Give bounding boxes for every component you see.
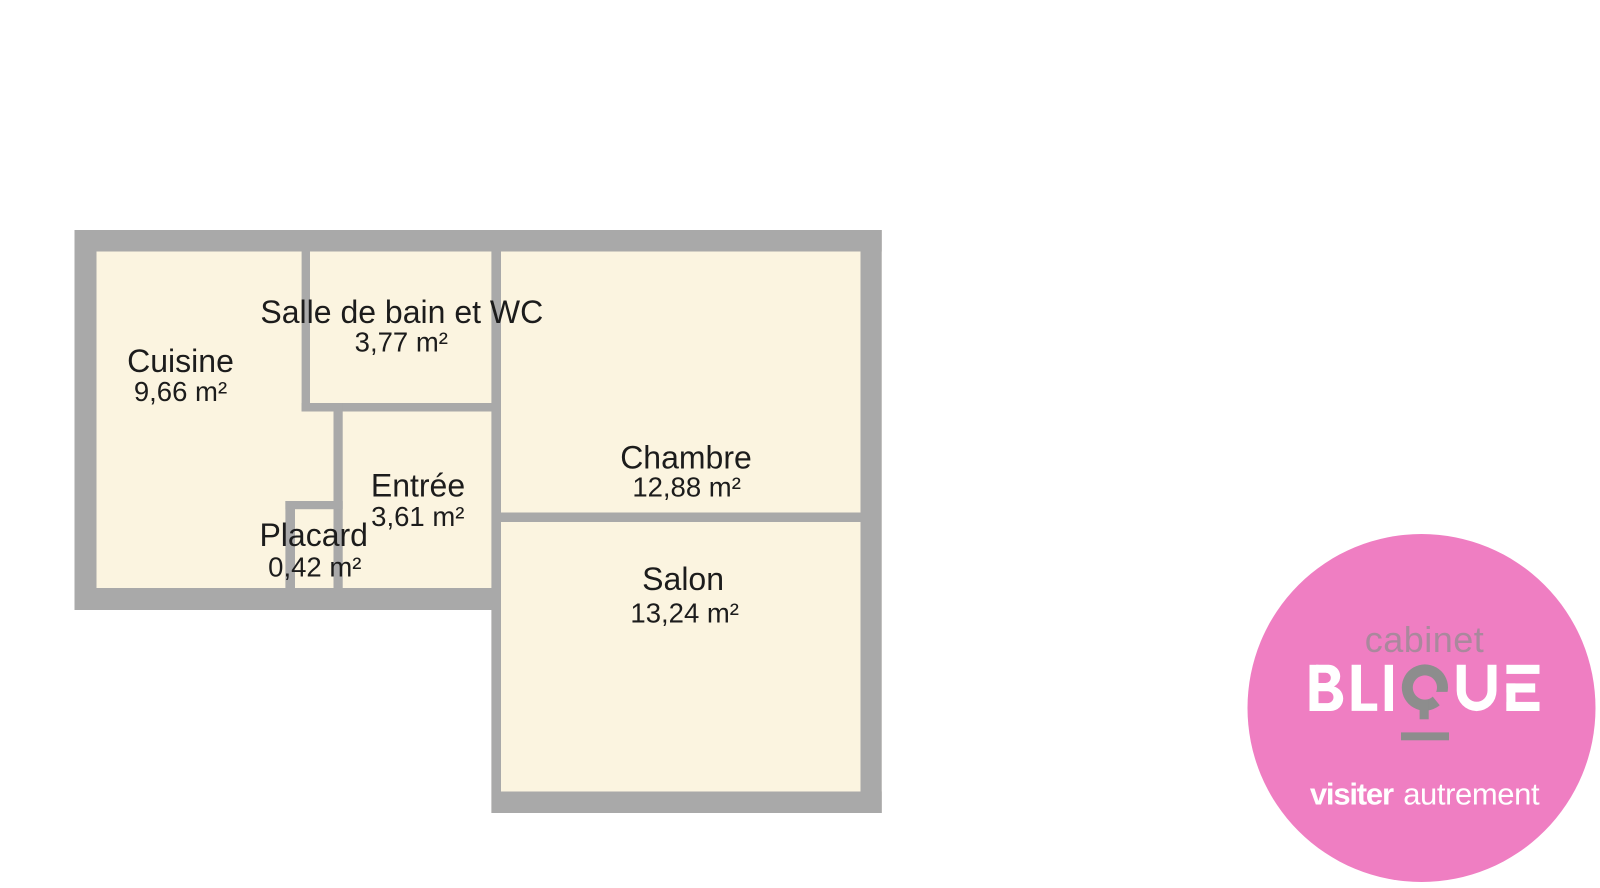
svg-text:Salon: Salon bbox=[642, 561, 724, 597]
svg-text:Entrée: Entrée bbox=[371, 468, 465, 504]
svg-text:Chambre: Chambre bbox=[620, 440, 752, 476]
svg-text:0,42 m²: 0,42 m² bbox=[268, 552, 361, 583]
svg-text:visiter: visiter bbox=[1310, 777, 1394, 812]
svg-text:Cuisine: Cuisine bbox=[127, 343, 234, 379]
svg-text:13,24 m²: 13,24 m² bbox=[630, 598, 739, 629]
svg-text:Placard: Placard bbox=[259, 517, 368, 553]
svg-text:9,66 m²: 9,66 m² bbox=[134, 376, 227, 407]
svg-text:Salle de bain et WC: Salle de bain et WC bbox=[260, 294, 543, 330]
svg-text:12,88 m²: 12,88 m² bbox=[632, 472, 741, 503]
svg-text:cabinet: cabinet bbox=[1365, 619, 1485, 660]
svg-text:3,77 m²: 3,77 m² bbox=[355, 327, 448, 358]
svg-text:3,61 m²: 3,61 m² bbox=[371, 501, 464, 532]
svg-text:autrement: autrement bbox=[1403, 777, 1540, 812]
